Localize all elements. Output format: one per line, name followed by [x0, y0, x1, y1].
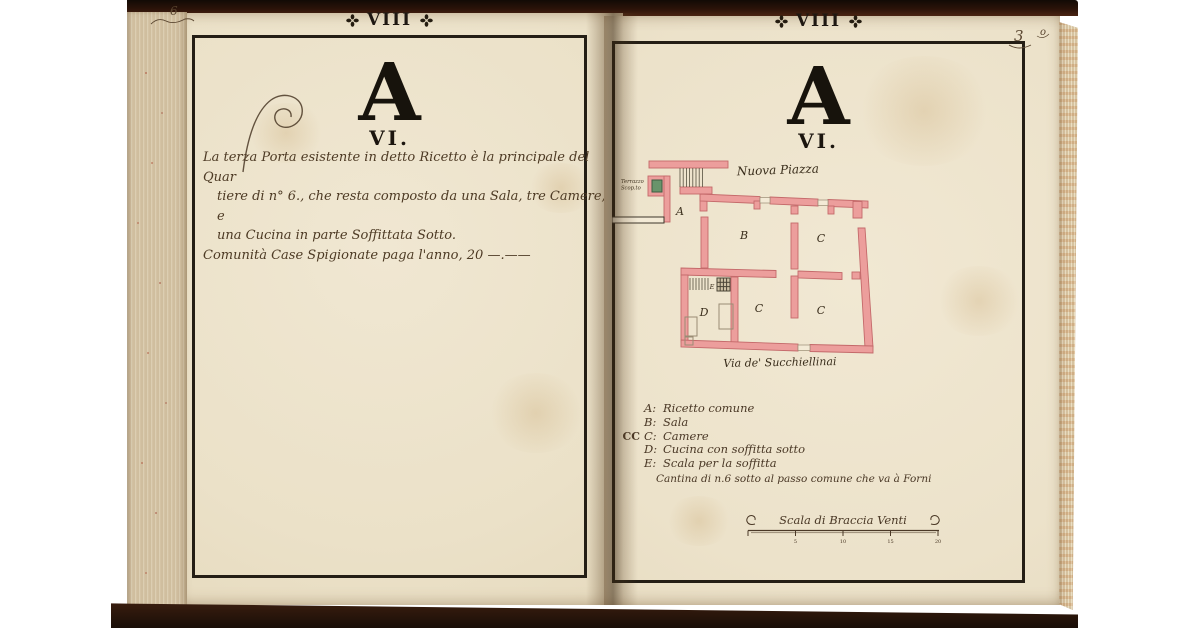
- legend-prefix: CC: [618, 430, 644, 444]
- legend-prefix: [618, 443, 644, 457]
- room-label-e: E: [709, 283, 715, 291]
- legend-key: E:: [644, 457, 663, 471]
- legend-text: Ricetto comune: [663, 402, 754, 416]
- folio-mark-right: 3 o: [1004, 20, 1064, 56]
- legend-note: Cantina di n.6 sotto al passo comune che…: [656, 473, 931, 487]
- room-label-b: B: [739, 229, 748, 242]
- folio-mark-left: 6: [148, 2, 200, 30]
- legend-prefix: [618, 457, 644, 471]
- legend-key: C:: [644, 430, 663, 444]
- room-label-c-mid: C: [755, 302, 764, 315]
- street-label-top: Nuova Piazza: [736, 162, 820, 179]
- manuscript-paragraph: La terza Porta esistente in detto Ricett…: [203, 148, 617, 265]
- svg-text:3: 3: [1014, 27, 1024, 45]
- paragraph-line: una Cucina in parte Soffittata Sotto.: [203, 226, 617, 246]
- right-folio-numeral: VIII: [796, 11, 841, 31]
- paragraph-line: tiere di n° 6., che resta composto da un…: [203, 187, 617, 226]
- legend-text: Camere: [663, 430, 709, 444]
- plan-legend: A: Ricetto comune B: Sala CC C: Camere D…: [618, 402, 931, 487]
- stairs-hatch-lower: [690, 278, 708, 290]
- street-label-bottom: Via de' Succhiellinai: [723, 355, 836, 370]
- legend-text: Sala: [663, 416, 688, 430]
- terrace-label-line2: Scop.to: [621, 186, 641, 192]
- scale-label: Scala di Braccia Venti: [779, 513, 907, 527]
- svg-text:o: o: [1040, 27, 1046, 38]
- plan-walls: [648, 161, 873, 353]
- plan-outlined-wall: [612, 217, 664, 223]
- right-page: VIII A VI.: [604, 16, 1060, 605]
- scale-bar: Scala di Braccia Venti 5 10 15 20: [743, 510, 943, 552]
- legend-key: B:: [644, 416, 663, 430]
- svg-text:6: 6: [170, 4, 178, 18]
- scale-tick-5: 5: [794, 539, 797, 545]
- legend-row: E: Scala per la soffitta: [618, 457, 931, 471]
- legend-text: Cucina con soffitta sotto: [663, 443, 805, 457]
- legend-prefix: [618, 402, 644, 416]
- floor-plan: Nuova Piazza Via de' Succhiellinai Terra…: [612, 150, 943, 380]
- scale-flourish-left: [747, 516, 755, 525]
- room-label-d: D: [699, 306, 709, 319]
- room-label-a: A: [675, 205, 684, 218]
- legend-row: B: Sala: [618, 416, 931, 430]
- scale-tick-20: 20: [935, 539, 941, 545]
- stairs-hatch-upper: [680, 168, 702, 187]
- left-page: VIII A VI. La terza Porta esistente in d…: [186, 13, 623, 605]
- scale-flourish-right: [931, 516, 939, 525]
- scale-ruler: [748, 531, 939, 537]
- terrace-label-line1: Terrazzo: [621, 179, 644, 185]
- footer-line: Comunità Case Spigionate paga l'anno, 20…: [203, 246, 617, 266]
- left-page-header: VIII: [192, 9, 587, 31]
- plan-grate: [717, 278, 730, 291]
- section-letter: A: [612, 56, 1025, 136]
- legend-text: Scala per la soffitta: [663, 457, 777, 471]
- scale-tick-10: 10: [840, 539, 846, 545]
- page-stack-fore-edge-left: [127, 12, 187, 610]
- quatrefoil-ornament-icon: [346, 14, 359, 27]
- manuscript-book-photo: VIII A VI. La terza Porta esistente in d…: [0, 0, 1200, 628]
- page-stack-fore-edge-right: [1059, 22, 1078, 610]
- legend-prefix: [618, 416, 644, 430]
- scale-tick-15: 15: [887, 539, 893, 545]
- legend-row: CC C: Camere: [618, 430, 931, 444]
- room-label-c-right: C: [817, 304, 826, 317]
- legend-row: A: Ricetto comune: [618, 402, 931, 416]
- terrace-window: [652, 180, 662, 192]
- legend-row: D: Cucina con soffitta sotto: [618, 443, 931, 457]
- left-folio-numeral: VIII: [367, 10, 412, 30]
- legend-key: A:: [644, 402, 663, 416]
- kitchen-fixtures: [685, 304, 733, 345]
- paragraph-line: La terza Porta esistente in detto Ricett…: [203, 148, 617, 187]
- room-label-c-upper: C: [817, 232, 826, 245]
- legend-key: D:: [644, 443, 663, 457]
- quatrefoil-ornament-icon: [420, 14, 433, 27]
- right-page-header: VIII: [612, 10, 1025, 32]
- quatrefoil-ornament-icon: [775, 15, 788, 28]
- quatrefoil-ornament-icon: [849, 15, 862, 28]
